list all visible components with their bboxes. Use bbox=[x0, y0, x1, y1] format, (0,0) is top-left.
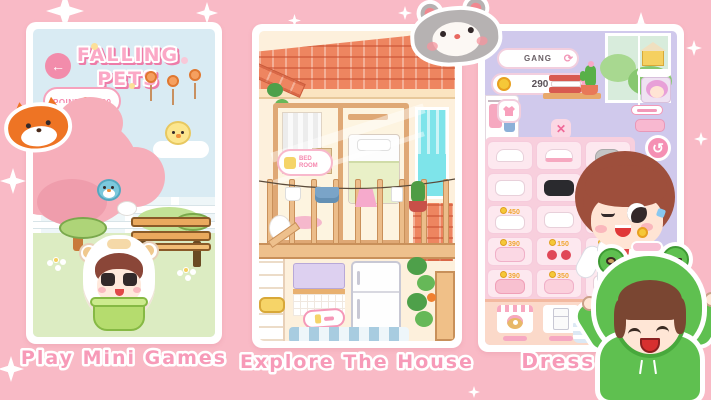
kid-happy-eye bbox=[628, 328, 641, 335]
ivy-plant bbox=[417, 275, 435, 291]
daisy-flower bbox=[183, 267, 189, 273]
chick-pet bbox=[165, 121, 191, 145]
flower-deco-icon bbox=[91, 43, 98, 50]
hood-face-patch bbox=[107, 239, 131, 249]
sparkle-icon bbox=[686, 40, 702, 56]
shirt-white bbox=[544, 212, 574, 228]
daisy-flower bbox=[53, 257, 59, 263]
bag-icon bbox=[284, 157, 296, 169]
sparkle-icon bbox=[468, 386, 480, 398]
caption-play-mini-games: Play Mini Games bbox=[24, 340, 224, 374]
svg-text:Explore The House: Explore The House bbox=[240, 351, 474, 373]
beak bbox=[176, 134, 181, 138]
frog-hoodie-kid-sticker bbox=[588, 244, 711, 400]
plant-pot bbox=[581, 85, 598, 95]
small-house bbox=[642, 50, 664, 66]
bench-backrest bbox=[131, 217, 211, 227]
bucket-rim bbox=[90, 297, 148, 307]
price-tag: 390 bbox=[488, 239, 532, 248]
top-black bbox=[544, 180, 574, 196]
top-pink bbox=[495, 247, 525, 262]
fox-sticker bbox=[5, 95, 76, 158]
flower-deco-icon bbox=[181, 57, 188, 64]
avatar-bangs bbox=[585, 165, 667, 207]
fridge-handle bbox=[357, 271, 360, 285]
cactus-arm bbox=[580, 71, 586, 81]
lollipop-flower-icon bbox=[145, 71, 157, 83]
coin-pickup-icon bbox=[637, 227, 648, 238]
caption-explore-the-house: Explore The House bbox=[254, 344, 460, 378]
price-tag: 390 bbox=[488, 271, 532, 280]
back-arrow-icon: ← bbox=[51, 58, 65, 74]
small-house-roof bbox=[640, 42, 666, 51]
glasses-red bbox=[547, 250, 557, 260]
beak bbox=[107, 189, 111, 192]
ivy-plant bbox=[415, 311, 433, 327]
shop-item-top[interactable]: 450 bbox=[487, 205, 533, 234]
side-cabinet bbox=[435, 271, 455, 341]
furniture-card-donut-stand[interactable] bbox=[497, 305, 533, 333]
badge-text-bar bbox=[637, 109, 657, 112]
hat-white bbox=[496, 149, 524, 162]
cactus bbox=[585, 65, 596, 87]
price-tag: 450 bbox=[488, 207, 532, 216]
promo-screenshot: FALLING PETS ← POINTS: 1520 bbox=[0, 0, 711, 400]
hat-pink-trim bbox=[545, 149, 573, 162]
npc-portrait[interactable] bbox=[641, 77, 671, 103]
bed-room-button[interactable]: BED ROOM bbox=[277, 149, 333, 176]
frog-pupil bbox=[606, 257, 616, 265]
sleep-status-badge bbox=[631, 105, 663, 115]
fridge[interactable] bbox=[351, 261, 401, 335]
sign-text-bar bbox=[323, 316, 333, 321]
ivy-plant bbox=[407, 293, 427, 311]
donut-hole bbox=[513, 320, 518, 325]
back-button[interactable]: ← bbox=[45, 53, 71, 79]
awning bbox=[497, 305, 533, 312]
frog-hand bbox=[582, 296, 597, 311]
kid-happy-eye bbox=[656, 326, 669, 333]
hanging-towel bbox=[391, 187, 403, 202]
ivy-leaf bbox=[267, 83, 283, 97]
mini-game-screen: FALLING PETS ← POINTS: 1520 bbox=[33, 29, 215, 337]
sparkle-icon bbox=[0, 168, 26, 194]
kid-hair-strand bbox=[674, 298, 686, 334]
sparkle-icon bbox=[196, 2, 218, 24]
panel-house: BED ROOM bbox=[252, 24, 462, 348]
fridge-line bbox=[553, 316, 569, 317]
avatar-open-eye bbox=[627, 203, 647, 223]
kid-hair-strand bbox=[614, 300, 626, 338]
close-icon: ✕ bbox=[556, 122, 566, 136]
player-name-field[interactable]: GANG ⟳ bbox=[497, 48, 579, 69]
cactus-flower bbox=[588, 61, 594, 67]
npc-name-label bbox=[637, 69, 671, 77]
npc-face bbox=[650, 86, 664, 98]
kid-hair bbox=[618, 280, 682, 320]
wall-cabinet bbox=[293, 263, 345, 289]
player-name: GANG bbox=[524, 54, 552, 63]
panel-mini-game: FALLING PETS ← POINTS: 1520 bbox=[26, 22, 222, 344]
coin-icon bbox=[497, 77, 511, 91]
shirt-pink bbox=[495, 279, 525, 294]
lollipop-flower-icon bbox=[167, 75, 179, 87]
top-white bbox=[495, 180, 525, 196]
fridge-handle bbox=[357, 299, 360, 319]
hanging-shirt bbox=[285, 187, 301, 201]
house-screen: BED ROOM bbox=[259, 31, 455, 341]
fridge-divider bbox=[353, 291, 399, 293]
shop-item-hat[interactable] bbox=[487, 141, 533, 170]
close-button[interactable]: ✕ bbox=[551, 119, 571, 139]
lollipop-flower-icon bbox=[189, 69, 201, 81]
shirt-icon bbox=[502, 105, 516, 117]
card-label-bar bbox=[503, 336, 527, 341]
mattress-item[interactable] bbox=[635, 119, 665, 132]
room-label-line2: ROOM bbox=[299, 163, 318, 170]
top-pink bbox=[544, 279, 574, 294]
sparkle-icon bbox=[694, 132, 708, 146]
clothes-category-button[interactable] bbox=[497, 99, 521, 123]
striped-rug bbox=[289, 327, 409, 341]
yellow-cushion bbox=[259, 297, 285, 313]
rabbit bbox=[117, 201, 137, 216]
ivy-plant bbox=[407, 257, 427, 275]
tee-white bbox=[495, 215, 525, 230]
book bbox=[549, 87, 581, 93]
room-label-line1: BED bbox=[299, 156, 318, 163]
orange-decor bbox=[427, 293, 436, 302]
cactus-pot bbox=[409, 201, 427, 212]
eye bbox=[123, 273, 137, 286]
penguin-pet bbox=[97, 179, 121, 201]
bottle-icon bbox=[314, 314, 321, 323]
hamster-sticker bbox=[410, 0, 506, 69]
shop-item-top[interactable] bbox=[487, 173, 533, 202]
fridge-icon bbox=[553, 308, 569, 330]
player-character bbox=[77, 231, 161, 331]
hanging-jeans bbox=[315, 187, 339, 203]
avatar-wink-eye bbox=[601, 213, 615, 217]
cactus bbox=[411, 181, 425, 203]
shop-item-top[interactable]: 390 bbox=[487, 237, 533, 266]
shop-item-top[interactable]: 390 bbox=[487, 269, 533, 298]
floor-beam bbox=[259, 243, 455, 259]
eye bbox=[101, 273, 115, 286]
card-label-bar bbox=[549, 336, 573, 341]
svg-text:Play Mini Games: Play Mini Games bbox=[21, 347, 227, 369]
flower-deco-icon bbox=[129, 83, 135, 89]
refresh-icon[interactable]: ⟳ bbox=[564, 52, 573, 65]
